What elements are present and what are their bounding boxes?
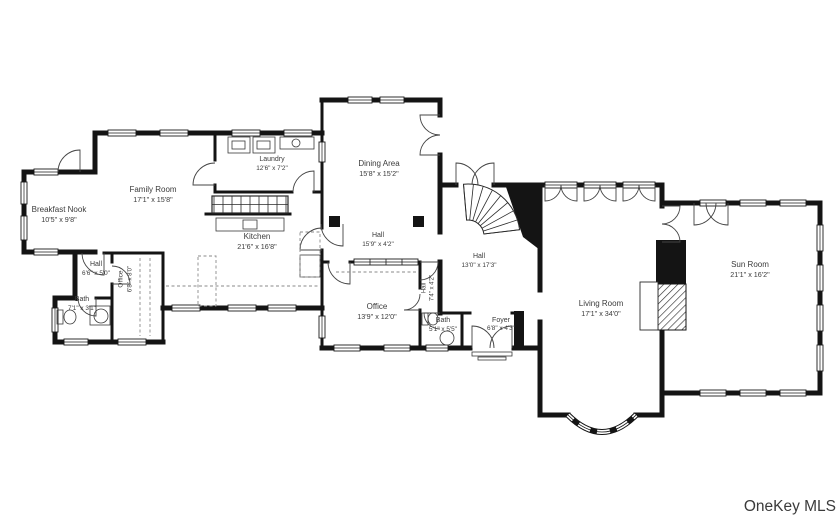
room-dims-foyer: 6'8" x 4'3" — [487, 325, 515, 332]
door-arc — [662, 206, 680, 224]
plan-geometry — [21, 97, 823, 432]
room-label-bath-center: Bath — [436, 317, 451, 324]
door-arc — [472, 163, 494, 185]
room-label-hall-mid: Hall — [422, 283, 428, 293]
room-dims-living-room: 17'1" x 34'0" — [581, 309, 621, 318]
door-arc — [300, 228, 322, 250]
fridge-icon — [300, 255, 320, 277]
room-label-dining-area: Dining Area — [358, 159, 400, 168]
door-arc — [193, 163, 215, 185]
sink-icon — [292, 139, 300, 147]
door-arc — [662, 224, 680, 242]
wall-block — [413, 216, 424, 227]
toilet-bowl-icon — [64, 310, 76, 324]
door-arc — [293, 171, 314, 192]
wall-block — [329, 216, 340, 227]
door-arc — [404, 294, 420, 310]
room-label-office-center: Office — [367, 302, 388, 311]
room-label-kitchen: Kitchen — [244, 232, 271, 241]
fireplace-hearth — [640, 282, 658, 330]
washer-icon — [232, 141, 245, 149]
room-dims-hall-mid: 7'4" x 4'2" — [430, 275, 436, 301]
room-label-hall-center: Hall — [372, 232, 385, 239]
room-dims-sun-room: 21'1" x 16'2" — [730, 270, 770, 279]
front-step — [472, 352, 512, 356]
room-dims-hall-stair: 13'0" x 17'3" — [461, 262, 496, 269]
room-label-family-room: Family Room — [129, 185, 176, 194]
room-label-hall-west: Hall — [90, 261, 103, 268]
room-dims-bath-west: 7'1" x 3'1" — [68, 305, 96, 312]
wall-block — [656, 240, 686, 284]
door-arc — [58, 150, 80, 172]
dryer-icon — [253, 137, 275, 153]
wall-block — [514, 311, 524, 350]
room-dims-hall-west: 6'6" x 5'0" — [82, 270, 110, 277]
room-dims-dining-area: 15'8" x 15'2" — [359, 169, 399, 178]
watermark-onekey-mls: OneKey MLS — [744, 498, 836, 515]
counter-dash — [198, 256, 216, 306]
floor-plan-page: Breakfast Nook 10'5" x 9'8" Family Room … — [0, 0, 840, 520]
room-dims-office-west: 6'8" x 8'0" — [128, 266, 134, 292]
room-label-laundry: Laundry — [259, 156, 285, 163]
room-dims-office-center: 13'9" x 12'0" — [357, 312, 397, 321]
room-label-hall-stair: Hall — [473, 253, 486, 260]
room-label-office-west: Office — [118, 270, 125, 287]
dryer-icon — [257, 141, 270, 149]
room-label-bath-west: Bath — [75, 296, 90, 303]
room-dims-bath-center: 5'1" x 5'5" — [429, 326, 457, 333]
room-label-foyer: Foyer — [492, 317, 511, 324]
front-step — [478, 357, 506, 360]
fireplace-hearth-hatch — [658, 284, 686, 330]
room-label-living-room: Living Room — [579, 299, 624, 308]
room-dims-breakfast-nook: 10'5" x 9'8" — [41, 215, 77, 224]
door-arc — [420, 115, 440, 135]
room-dims-laundry: 12'6" x 7'2" — [256, 165, 288, 172]
floor-plan-svg: Breakfast Nook 10'5" x 9'8" Family Room … — [0, 0, 840, 520]
sink-icon — [440, 331, 454, 345]
door-arc — [420, 135, 440, 155]
room-dims-kitchen: 21'6" x 16'8" — [237, 242, 277, 251]
room-label-sun-room: Sun Room — [731, 260, 769, 269]
door-arc — [328, 262, 350, 284]
room-dims-hall-center: 15'9" x 4'2" — [362, 241, 394, 248]
room-dims-family-room: 17'1" x 15'8" — [133, 195, 173, 204]
door-arc — [321, 224, 343, 246]
cooktop-icon — [243, 220, 257, 229]
washer-icon — [228, 137, 250, 153]
room-label-breakfast-nook: Breakfast Nook — [32, 205, 88, 214]
